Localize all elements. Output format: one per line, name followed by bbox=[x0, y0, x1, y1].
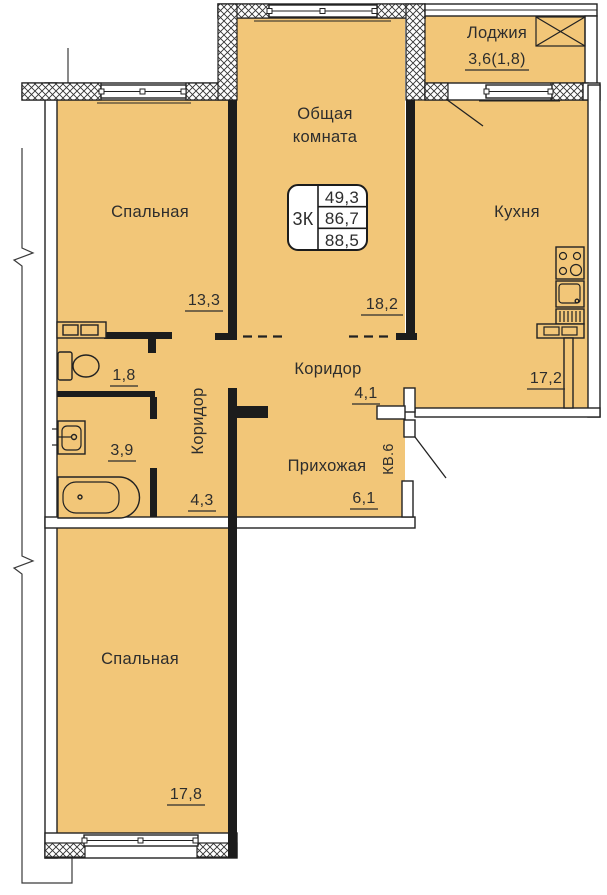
common-right-wall bbox=[406, 100, 415, 333]
bedroom-bottom-area: 17,8 bbox=[170, 786, 202, 803]
common-left-wall bbox=[228, 100, 237, 333]
loggia-right-wall bbox=[585, 16, 597, 85]
window-mullion bbox=[267, 9, 272, 14]
wall-hatch-segment bbox=[22, 83, 101, 100]
kitchen-name: Кухня bbox=[494, 203, 540, 221]
kitchen-bottom-wall bbox=[415, 408, 600, 417]
common-room-floor bbox=[237, 16, 405, 340]
bedroom-bottom-name: Спальная bbox=[101, 650, 179, 668]
common-room-name-line2: комната bbox=[293, 128, 358, 146]
floor-plan-drawing: 3К 49,3 86,7 88,5 Лоджия 3,6(1,8) Общая … bbox=[0, 0, 607, 895]
kitchen-counter-side bbox=[564, 338, 573, 408]
wall-hatch-segment bbox=[45, 843, 85, 857]
wall-hatch-segment bbox=[551, 83, 583, 100]
window-mullion bbox=[193, 838, 198, 843]
bathroom-right-wall-upper bbox=[150, 397, 157, 419]
floor-plan: 3К 49,3 86,7 88,5 Лоджия 3,6(1,8) Общая … bbox=[0, 0, 607, 895]
entrance-door-swing bbox=[415, 437, 446, 478]
bedroom-top-name: Спальная bbox=[111, 203, 189, 221]
wc-shelf-item bbox=[81, 325, 98, 335]
corridor-small-name: Коридор bbox=[189, 387, 207, 454]
window-mullion bbox=[99, 89, 104, 94]
wc-bottom-wall bbox=[57, 391, 155, 397]
hallway-area: 6,1 bbox=[352, 490, 375, 507]
wc-area: 1,8 bbox=[112, 367, 135, 384]
hallway-cabinet bbox=[377, 406, 405, 419]
window-mullion bbox=[138, 838, 143, 843]
kitchen-area: 17,2 bbox=[530, 370, 562, 387]
hallway-name: Прихожая bbox=[288, 457, 367, 475]
window-mullion bbox=[548, 89, 553, 94]
wall-stub bbox=[148, 339, 156, 353]
window-mullion bbox=[372, 9, 377, 14]
apartment-info-box: 3К 49,3 86,7 88,5 bbox=[288, 185, 367, 250]
living-area-value: 49,3 bbox=[325, 188, 359, 207]
wall-hatch-segment bbox=[425, 83, 448, 100]
corridor-divider-wall bbox=[237, 406, 268, 418]
corridor-main-name: Коридор bbox=[294, 360, 361, 378]
wall-hatch-pier bbox=[406, 4, 425, 100]
toilet-bowl-icon bbox=[73, 355, 99, 377]
rooms-count-label: 3К bbox=[292, 209, 313, 229]
wall-foot bbox=[396, 333, 417, 340]
bedroom-top-area: 13,3 bbox=[188, 292, 220, 309]
toilet-tank-icon bbox=[58, 352, 72, 380]
unit-number-label: КВ.6 bbox=[381, 443, 397, 474]
window-mullion bbox=[82, 838, 87, 843]
corridor-small-area: 4,3 bbox=[190, 492, 213, 509]
loggia-name: Лоджия bbox=[467, 24, 527, 42]
kitchen-sink-drain bbox=[575, 299, 579, 303]
total-area-value: 88,5 bbox=[325, 231, 359, 250]
window-mullion bbox=[181, 89, 186, 94]
hallway-left-wall bbox=[228, 388, 237, 517]
bathroom-right-wall-lower bbox=[150, 468, 157, 517]
window-mullion bbox=[140, 89, 145, 94]
door-jamb bbox=[404, 420, 415, 437]
faucet-icon bbox=[72, 435, 77, 440]
bedroom-bottom-floor bbox=[57, 520, 228, 843]
kitchen-right-wall bbox=[588, 85, 600, 417]
bathtub-drain bbox=[78, 495, 82, 499]
common-room-name-line1: Общая bbox=[297, 105, 352, 123]
wall-hatch-pier bbox=[218, 4, 237, 100]
bedroom-bottom-right-wall bbox=[228, 517, 237, 858]
wc-shelf-item bbox=[63, 325, 78, 335]
window-mullion bbox=[484, 89, 489, 94]
area-without-loggia-value: 86,7 bbox=[325, 209, 359, 228]
window-mullion bbox=[320, 9, 325, 14]
loggia-area: 3,6(1,8) bbox=[468, 51, 526, 68]
wall-foot bbox=[215, 333, 237, 340]
door-jamb bbox=[402, 481, 413, 517]
common-room-area: 18,2 bbox=[366, 296, 398, 313]
corridor-main-area: 4,1 bbox=[354, 385, 377, 402]
wc-top-wall bbox=[104, 332, 172, 339]
bathroom-area: 3,9 bbox=[110, 442, 133, 459]
left-exterior-wall bbox=[45, 83, 57, 858]
